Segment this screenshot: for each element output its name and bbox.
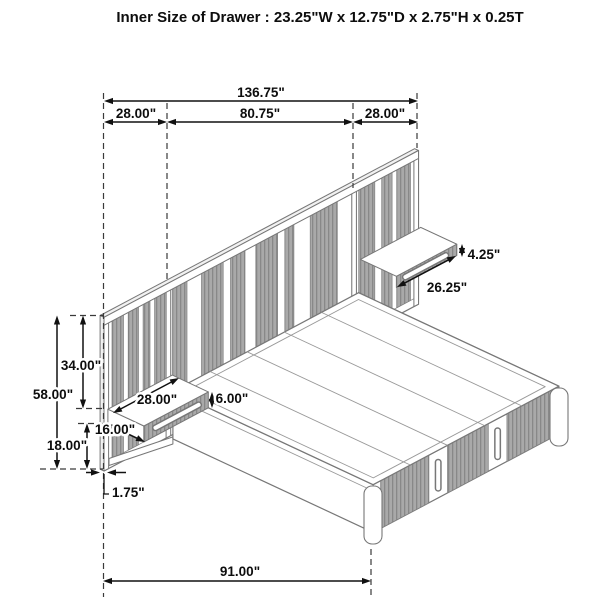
drawer-size-title: Inner Size of Drawer : 23.25"W x 12.75"D…: [116, 9, 523, 26]
dim-panel-thickness-label: 1.75": [112, 485, 145, 500]
dim-right-nightstand-width-label: 26.25": [427, 280, 467, 295]
dim-left-nightstand-height-label: 6.00": [216, 391, 249, 406]
dim-center-section-width-label: 80.75": [240, 106, 280, 121]
dim-left-nightstand-width-label: 28.00": [137, 392, 177, 407]
dimension-diagram-page: Inner Size of Drawer : 23.25"W x 12.75"D…: [0, 0, 600, 600]
dim-right-nightstand-height-label: 4.25": [468, 247, 501, 262]
dim-nightstand-depth-label: 16.00": [95, 422, 135, 437]
dim-right-panel-width-label: 28.00": [365, 106, 405, 121]
dim-overall-width-label: 136.75": [237, 85, 285, 100]
dim-bed-length-label: 91.00": [220, 564, 260, 579]
dim-left-panel-width-label: 28.00": [116, 106, 156, 121]
isometric-bed-dimension-diagram: Inner Size of Drawer : 23.25"W x 12.75"D…: [0, 0, 600, 600]
dim-headboard-upper-height-label: 34.00": [61, 358, 101, 373]
dim-platform-height-label: 18.00": [47, 438, 87, 453]
dim-overall-height-label: 58.00": [33, 387, 73, 402]
